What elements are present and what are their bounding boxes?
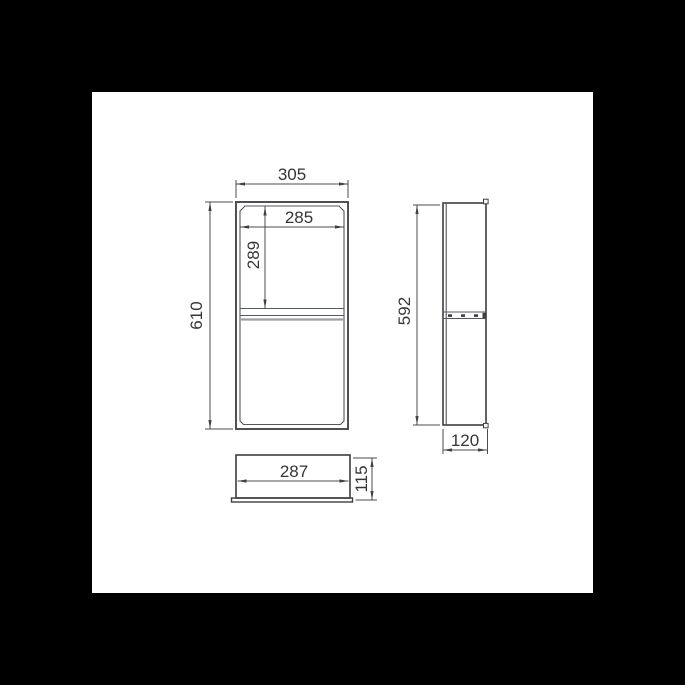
side-bottom-flange-tab [484,423,489,427]
side-dimensions: 592 120 [395,205,488,454]
side-divider-tick [448,314,452,317]
side-outline [443,203,486,425]
side-top-flange-tab [484,199,489,204]
dim-label-front-outer-height: 610 [187,301,206,329]
dim-label-side-depth: 120 [451,431,479,450]
front-view [236,202,348,429]
dim-label-front-upper-height: 289 [244,241,263,269]
black-matte: 305 285 289 610 [0,0,685,685]
bottom-front-flange [232,498,353,502]
dim-label-bottom-depth: 115 [352,465,371,492]
dim-label-front-outer-width: 305 [278,165,306,184]
side-divider-tick [461,314,465,317]
dim-label-front-inner-width: 285 [285,208,313,227]
side-view [443,199,488,428]
dim-label-bottom-width: 287 [280,462,308,481]
side-divider-tick [474,314,478,317]
bottom-dimensions: 287 115 [238,458,378,500]
front-dimensions: 305 285 289 610 [187,165,348,429]
technical-drawing: 305 285 289 610 [92,92,593,593]
side-divider-end-block [483,313,487,318]
drawing-paper: 305 285 289 610 [92,92,593,593]
dim-label-side-height: 592 [395,297,414,325]
